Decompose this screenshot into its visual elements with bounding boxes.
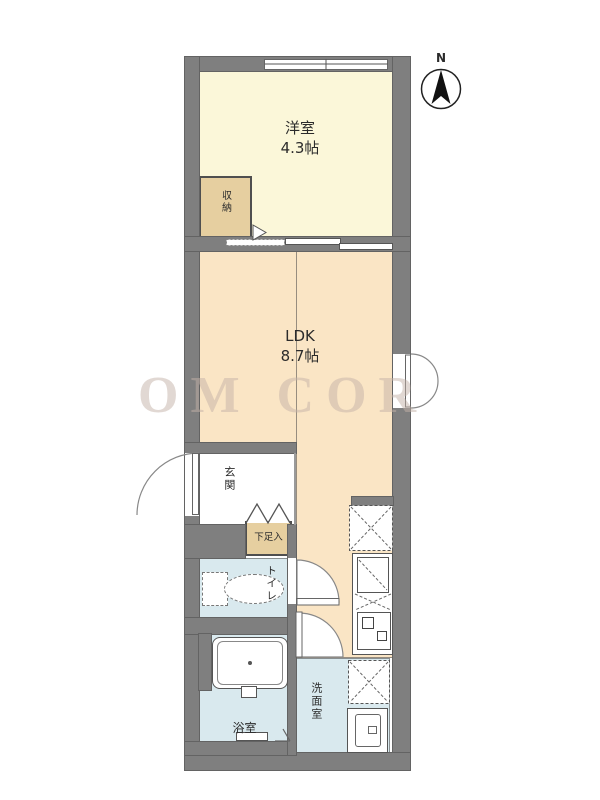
- ldk-label: LDK8.7帖: [240, 326, 360, 367]
- ldk-size: 8.7帖: [281, 347, 320, 365]
- wall: [185, 525, 245, 558]
- bathroom-door-notch: [241, 686, 257, 698]
- bathtub-drain: [248, 661, 252, 665]
- window: [264, 59, 388, 70]
- stove-burner: [377, 631, 387, 641]
- wall: [185, 57, 199, 770]
- wall: [352, 497, 393, 505]
- storage-label: 収納: [218, 190, 232, 214]
- door-swing: [411, 354, 438, 408]
- toilet-label: トイレ: [264, 565, 278, 603]
- wall: [185, 618, 296, 634]
- entrance-label: 玄関: [221, 466, 236, 492]
- wall: [185, 753, 410, 770]
- western-room-size: 4.3帖: [281, 139, 320, 157]
- vanity-faucet: [368, 726, 377, 734]
- western-room-label: 洋室4.3帖: [240, 118, 360, 159]
- wall: [185, 443, 296, 453]
- wall: [199, 634, 211, 690]
- wall: [185, 742, 296, 755]
- room-entrance: [199, 453, 295, 525]
- western-room-name: 洋室: [285, 119, 315, 137]
- shoe-box-label: 下足入: [245, 532, 292, 545]
- floor-plan: 洋室4.3帖 LDK8.7帖 収納 下足入 玄関 トイレ 浴室 洗面室 N OM…: [0, 0, 600, 800]
- washroom-label: 洗面室: [308, 682, 323, 721]
- compass-icon: [422, 70, 461, 109]
- ldk-name: LDK: [285, 327, 315, 345]
- stove-burner: [362, 617, 374, 629]
- bathroom-label: 浴室: [199, 720, 290, 736]
- sliding-door-panel: [339, 243, 393, 250]
- wall: [393, 57, 410, 770]
- entrance-step-line: [294, 453, 296, 525]
- sliding-door-panel: [285, 238, 341, 245]
- compass-north-label: N: [434, 50, 448, 66]
- kitchen-sink: [357, 557, 389, 593]
